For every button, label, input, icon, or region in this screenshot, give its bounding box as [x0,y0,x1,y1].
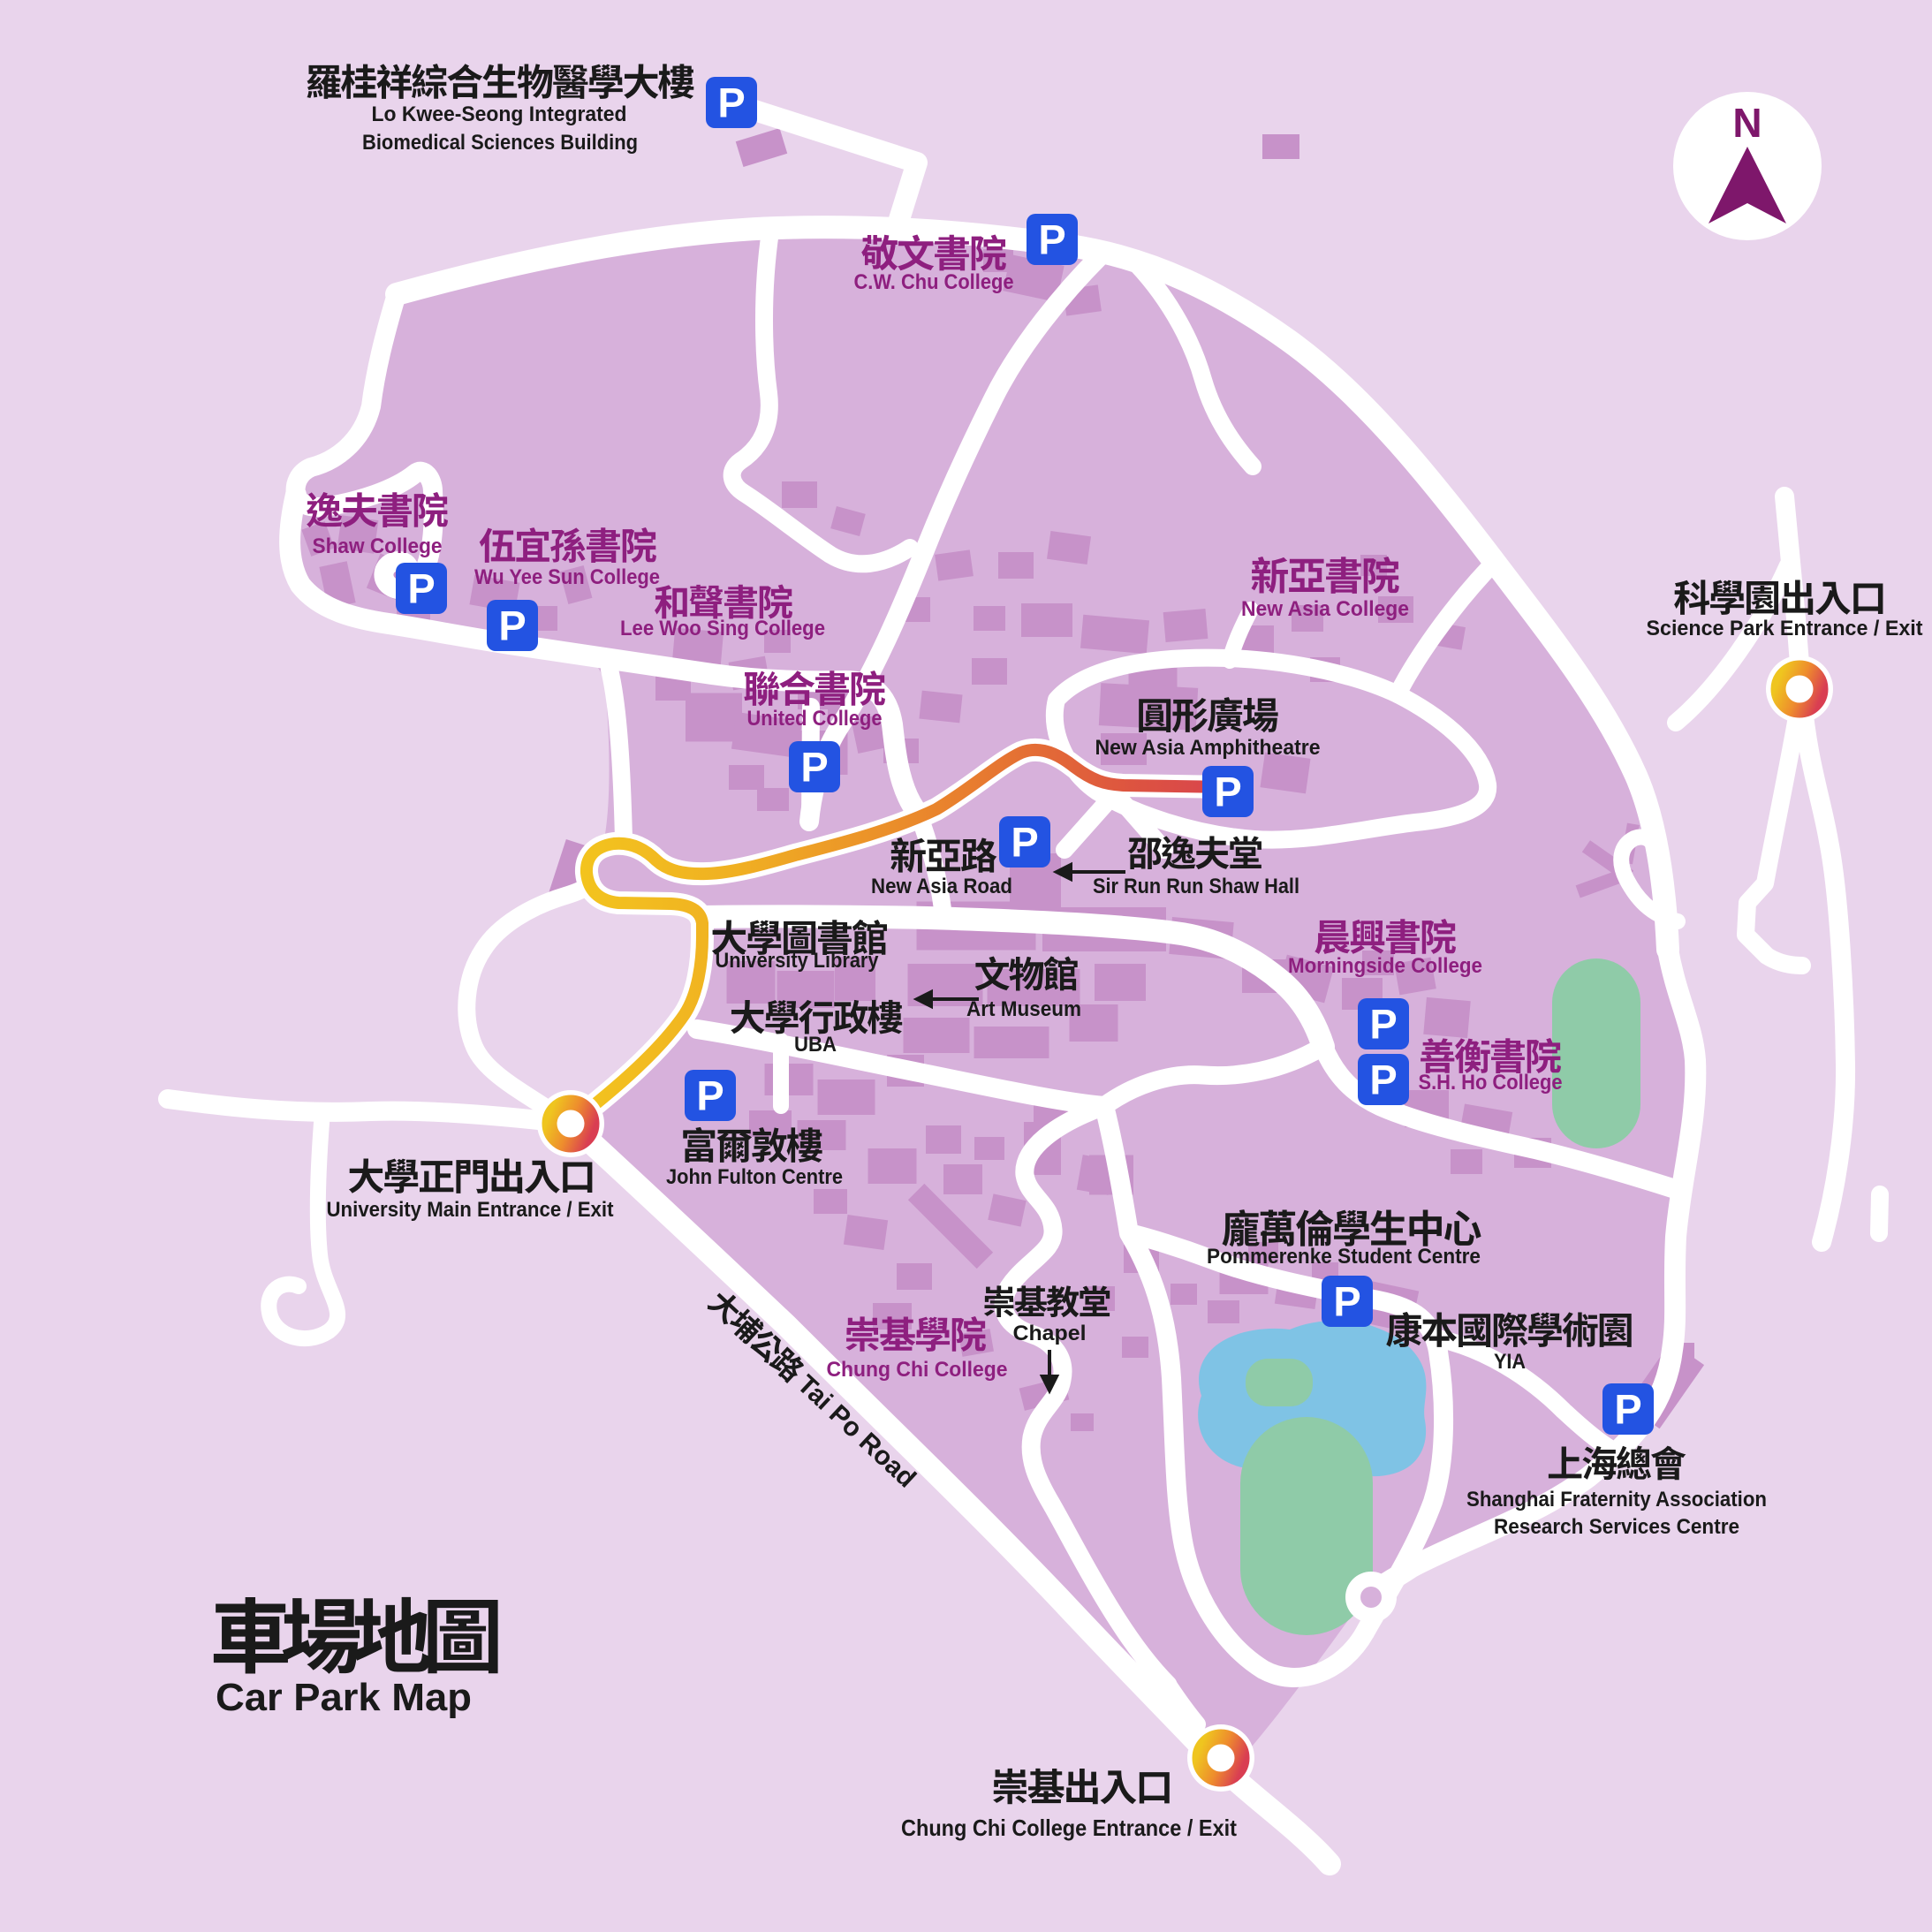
svg-text:P: P [800,744,828,791]
svg-text:Morningside College: Morningside College [1288,954,1482,978]
svg-text:Lee Woo Sing College: Lee Woo Sing College [620,617,825,640]
svg-text:P: P [717,80,745,126]
svg-text:P: P [1333,1278,1360,1325]
svg-text:University Main Entrance / Exi: University Main Entrance / Exit [327,1198,614,1222]
svg-text:P: P [1214,769,1241,815]
svg-text:Art Museum: Art Museum [966,997,1081,1021]
svg-text:New Asia Amphitheatre: New Asia Amphitheatre [1095,736,1321,760]
svg-text:Chapel: Chapel [1013,1322,1087,1345]
svg-text:P: P [407,565,435,612]
svg-text:Chung Chi College Entrance / E: Chung Chi College Entrance / Exit [901,1815,1237,1841]
svg-text:P: P [1614,1386,1641,1433]
svg-text:Shanghai Fraternity Associatio: Shanghai Fraternity Association [1466,1488,1767,1512]
svg-text:Car Park Map: Car Park Map [216,1676,472,1719]
svg-text:Science Park Entrance / Exit: Science Park Entrance / Exit [1647,617,1923,640]
svg-text:Research Services Centre: Research Services Centre [1494,1515,1739,1539]
svg-text:UBA: UBA [794,1033,837,1057]
svg-text:John Fulton Centre: John Fulton Centre [666,1165,843,1189]
svg-text:Biomedical Sciences Building: Biomedical Sciences Building [362,131,638,155]
svg-text:N: N [1732,100,1762,146]
svg-text:C.W. Chu College: C.W. Chu College [854,270,1014,294]
svg-text:S.H. Ho College: S.H. Ho College [1419,1071,1563,1095]
svg-text:Chung Chi College: Chung Chi College [827,1358,1008,1382]
svg-text:P: P [1038,216,1065,263]
svg-text:University Library: University Library [716,949,880,973]
svg-text:New Asia College: New Asia College [1241,597,1409,621]
svg-text:United College: United College [747,707,883,731]
svg-text:P: P [696,1072,724,1119]
svg-text:P: P [498,602,526,649]
svg-text:P: P [1369,1057,1397,1103]
svg-text:Wu Yee Sun College: Wu Yee Sun College [474,565,660,589]
svg-text:Lo Kwee-Seong Integrated: Lo Kwee-Seong Integrated [372,102,627,126]
svg-text:YIA: YIA [1494,1350,1526,1374]
svg-text:Pommerenke Student Centre: Pommerenke Student Centre [1207,1245,1481,1269]
svg-text:Shaw College: Shaw College [313,534,443,558]
svg-text:New Asia Road: New Asia Road [871,875,1012,898]
svg-text:Sir Run Run Shaw Hall: Sir Run Run Shaw Hall [1093,875,1299,898]
svg-text:P: P [1369,1001,1397,1048]
svg-text:P: P [1011,819,1038,866]
